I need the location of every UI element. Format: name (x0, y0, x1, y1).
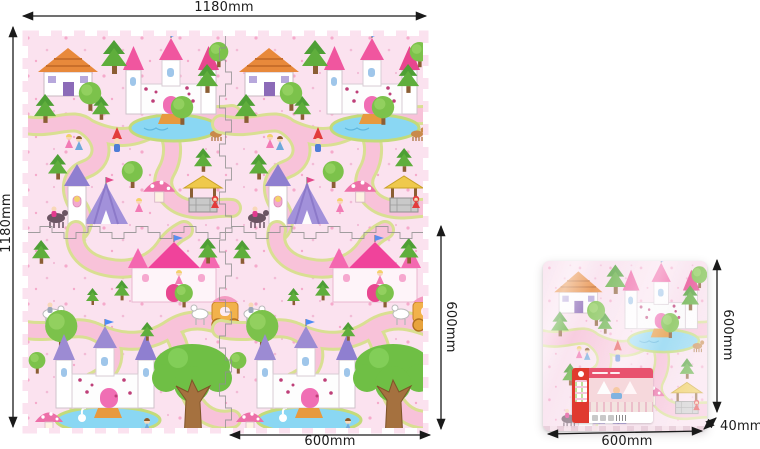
package-illustration (543, 261, 707, 431)
label-mat-thumbnail (575, 380, 587, 402)
label-package-thickness: 40mm (720, 419, 760, 435)
label-footer-strip (589, 412, 653, 423)
teepee-icon (597, 381, 611, 394)
label-package-height: 600mm (719, 280, 735, 390)
label-package-width: 600mm (572, 434, 682, 449)
label-mat-height: 1180mm (0, 168, 15, 278)
label-main-panel (589, 368, 653, 423)
package-label (572, 368, 653, 423)
label-mat-width: 1180mm (169, 0, 279, 16)
label-tile-height: 600mm (442, 272, 458, 382)
mat-illustration (22, 30, 429, 434)
label-photo (589, 378, 653, 412)
label-title-strip (589, 368, 653, 378)
brand-logo-icon (578, 371, 584, 377)
label-red-panel (572, 368, 589, 423)
package-stack-edge (543, 426, 707, 431)
teepee-icon (623, 381, 637, 394)
barcode-icon (616, 415, 628, 421)
label-tile-width: 600mm (275, 434, 385, 449)
product-dimension-diagram: 1180mm 1180mm 600mm 600mm 600mm 600mm 40… (0, 0, 760, 449)
